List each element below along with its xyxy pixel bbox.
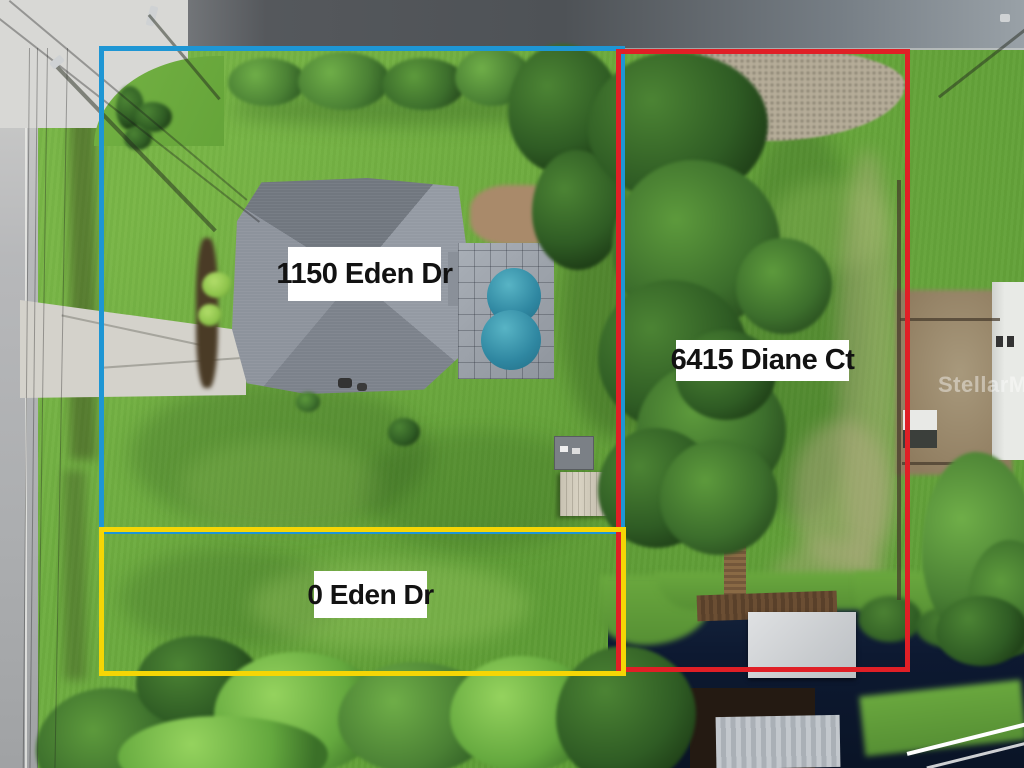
neighbor-window xyxy=(996,336,1003,347)
address-label-0-eden-dr: 0 Eden Dr xyxy=(314,571,427,618)
fence-line xyxy=(900,318,1000,321)
aerial-photo: 1150 Eden Dr 6415 Diane Ct 0 Eden Dr Ste… xyxy=(0,0,1024,768)
address-label-6415-diane-ct: 6415 Diane Ct xyxy=(676,340,849,381)
neighbor-house xyxy=(992,282,1024,460)
mls-watermark: StellarMLS xyxy=(938,372,1024,398)
neighbor-window xyxy=(1007,336,1014,347)
lower-boathouse-roof xyxy=(716,715,841,768)
tree-canopy xyxy=(936,596,1024,666)
address-label-1150-eden-dr: 1150 Eden Dr xyxy=(288,247,441,301)
ditch xyxy=(64,470,86,680)
utility-pole xyxy=(1000,14,1010,22)
